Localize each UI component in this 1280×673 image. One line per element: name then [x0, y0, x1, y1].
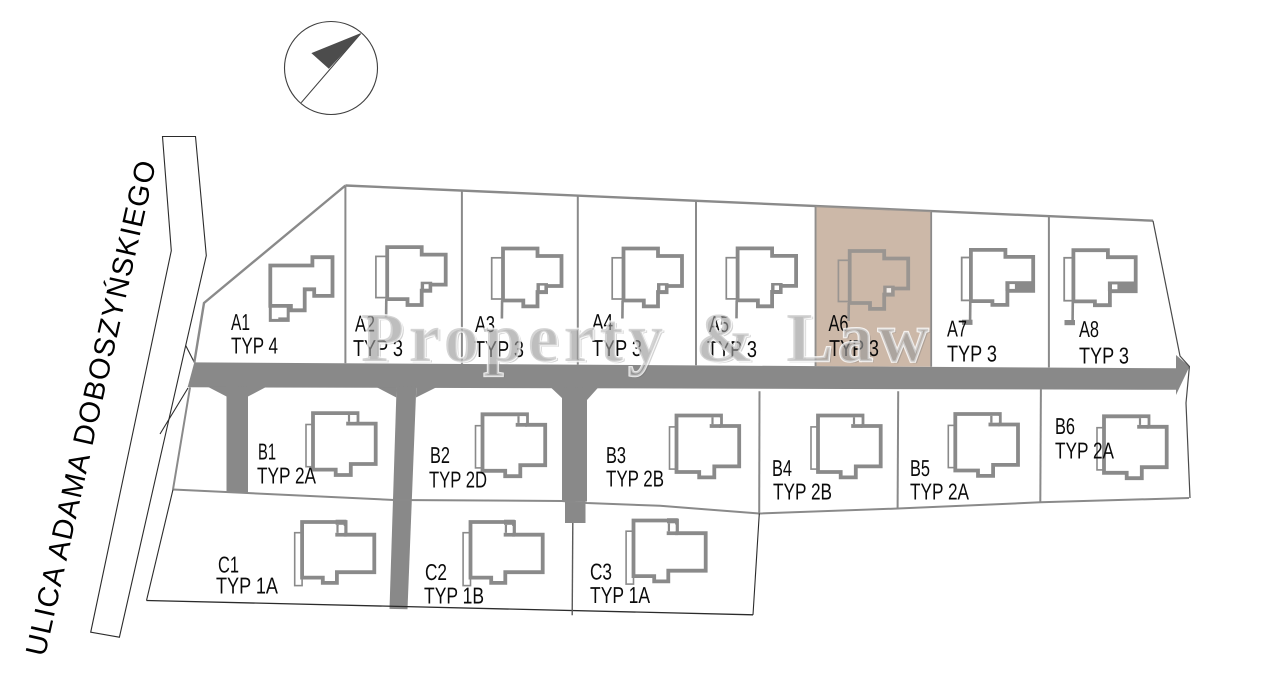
svg-text:TYP 2D: TYP 2D	[429, 467, 487, 493]
svg-text:TYP 2A: TYP 2A	[1055, 438, 1114, 464]
svg-text:B5: B5	[910, 455, 930, 481]
svg-text:A8: A8	[1079, 316, 1099, 342]
svg-text:TYP 2A: TYP 2A	[910, 479, 969, 505]
svg-text:TYP 2A: TYP 2A	[257, 463, 316, 489]
svg-text:TYP 4: TYP 4	[231, 333, 278, 359]
svg-text:B2: B2	[430, 442, 450, 468]
svg-text:TYP 3: TYP 3	[947, 341, 997, 367]
svg-text:A7: A7	[947, 316, 967, 342]
svg-text:B6: B6	[1055, 413, 1075, 439]
svg-text:B1: B1	[258, 439, 276, 465]
svg-text:TYP 3: TYP 3	[1079, 343, 1129, 369]
svg-text:B4: B4	[772, 455, 792, 481]
svg-text:TYP 1B: TYP 1B	[424, 583, 484, 609]
svg-text:TYP 1A: TYP 1A	[216, 573, 279, 599]
svg-text:TYP 1A: TYP 1A	[590, 582, 650, 608]
svg-text:TYP 2B: TYP 2B	[606, 466, 664, 492]
svg-text:A1: A1	[231, 309, 250, 335]
svg-text:C3: C3	[590, 559, 612, 585]
svg-text:Property & Law: Property & Law	[361, 300, 934, 377]
svg-text:B3: B3	[606, 442, 626, 468]
svg-text:TYP 2B: TYP 2B	[773, 479, 832, 505]
svg-text:C2: C2	[425, 559, 447, 585]
